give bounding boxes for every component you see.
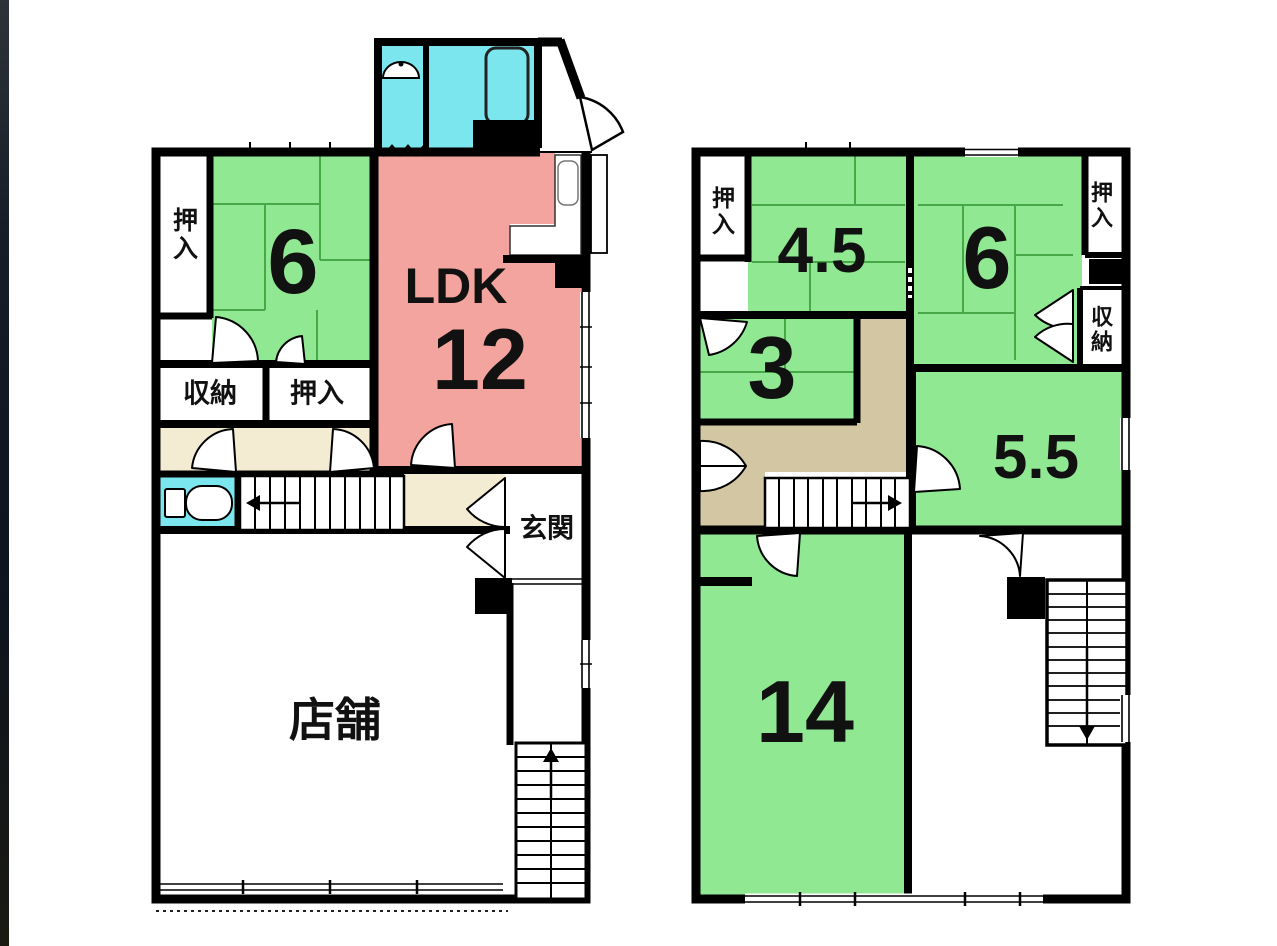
stairs-1f-hall: [240, 476, 404, 530]
label-shop: 店舗: [289, 697, 381, 743]
genkan-black-block: [475, 578, 512, 614]
hall-2f-fill-vert: [857, 315, 910, 423]
door-white-room: [980, 533, 1023, 576]
bathtub-icon: [486, 48, 528, 124]
label-closet-mid-1f: 押入: [290, 381, 344, 408]
door-genkan-lower: [467, 529, 505, 578]
label-ldk: LDK: [405, 261, 508, 311]
label-tatami45: 4.5: [778, 218, 867, 282]
label-storage-2f: 収納: [1089, 305, 1111, 355]
floorplan-drawing: [0, 0, 1277, 946]
porch-diagonal-wall: [560, 40, 581, 98]
closet-tr-black-block: [1089, 259, 1126, 284]
stairs-2f-center: [765, 478, 910, 528]
washroom-fill: [378, 44, 426, 148]
label-tatami55: 5.5: [993, 427, 1079, 489]
label-tatami6-1f: 6: [267, 216, 318, 308]
kitchen-bay-window: [591, 155, 607, 253]
plan-second-floor: [696, 142, 1132, 906]
sink-drain-icon: [399, 62, 404, 67]
stairs-2f-down: [1047, 580, 1127, 745]
label-ldk-size: 12: [432, 317, 528, 403]
black-block-2f: [1007, 577, 1045, 619]
kitchen-wall-stub: [503, 255, 555, 263]
label-closet-1f: 押入: [171, 207, 196, 263]
storefront-window: [160, 884, 503, 890]
kitchen-sink-icon: [558, 161, 578, 205]
plan-first-floor: [156, 38, 623, 911]
porch-door-arc: [580, 97, 623, 150]
toilet-tank-icon: [165, 489, 185, 517]
label-closet-tr-2f: 押入: [1089, 181, 1111, 231]
label-entrance: 玄関: [520, 516, 574, 543]
label-tatami14: 14: [756, 668, 854, 756]
kitchen-black-block: [555, 255, 583, 288]
genkan-step-line: [512, 579, 584, 584]
toilet-bowl-icon: [186, 486, 232, 520]
wall-stub-room14: [700, 577, 752, 586]
label-tatami3: 3: [748, 324, 797, 412]
label-tatami6-2f: 6: [963, 214, 1012, 302]
label-closet-tl-2f: 押入: [710, 186, 733, 238]
floorplan-image: 押入 6 LDK 12 収納 押入 玄関 店舗 押入 4.5 6 押入 収納 3…: [0, 0, 1277, 946]
label-storage-1f: 収納: [183, 381, 237, 408]
stairs-shop-up: [516, 743, 586, 899]
